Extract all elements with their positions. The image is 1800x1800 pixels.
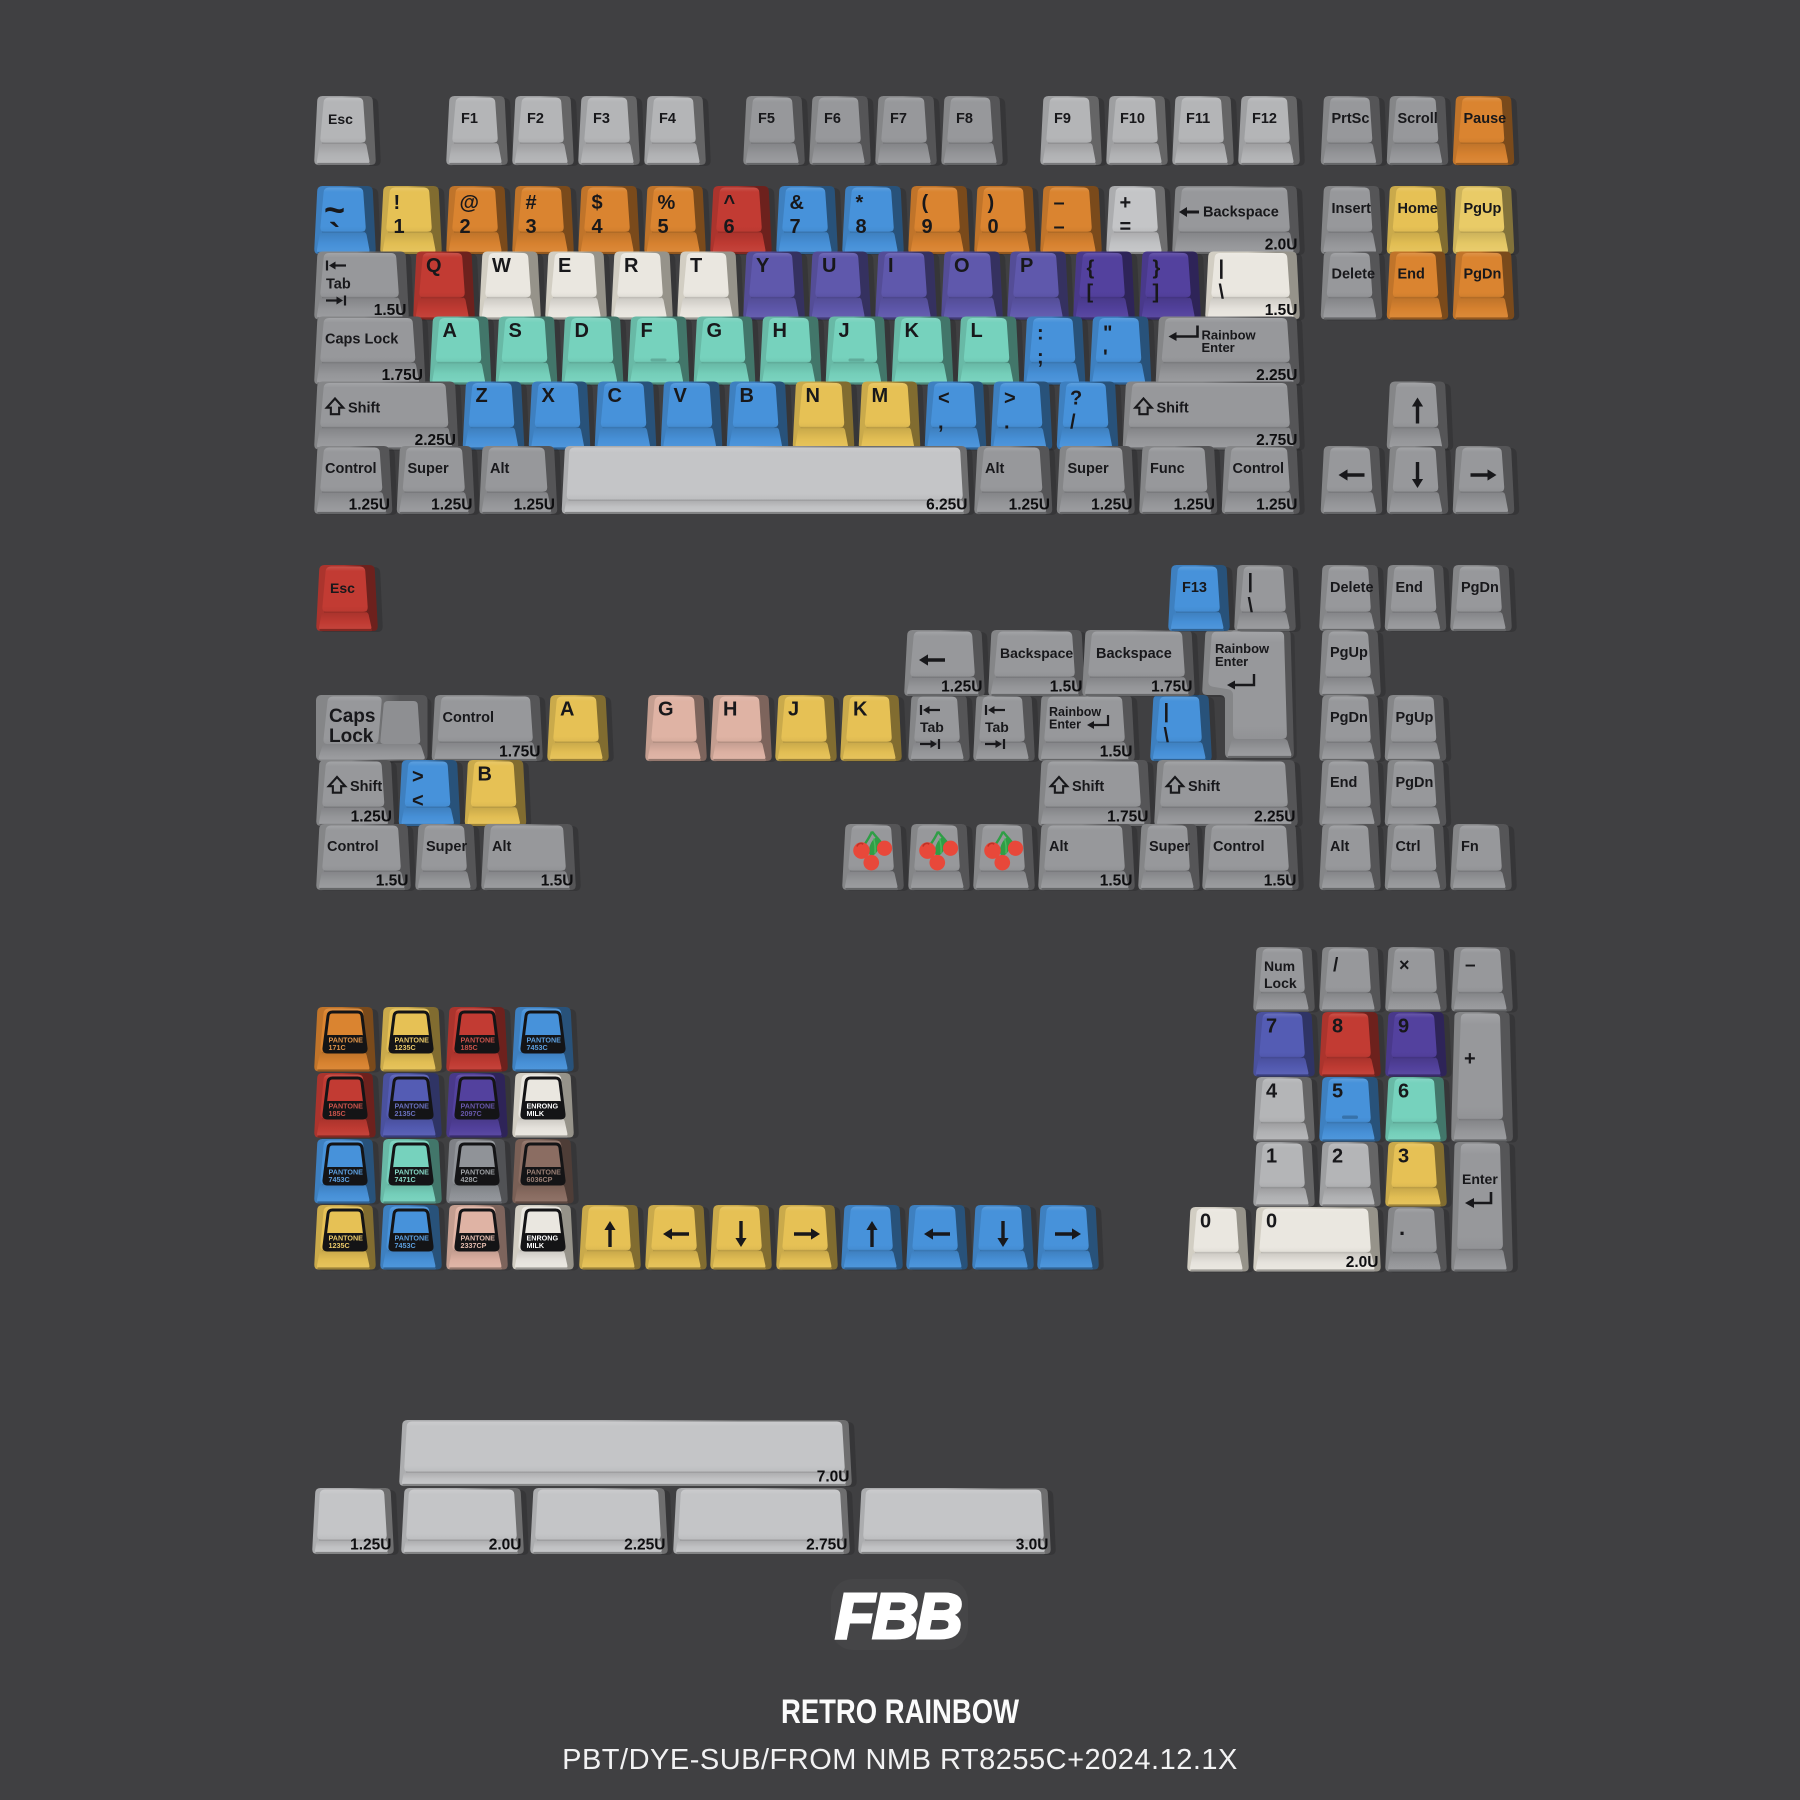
svg-text:2.25U: 2.25U bbox=[624, 1537, 665, 1554]
svg-text:B: B bbox=[478, 764, 492, 786]
svg-text:;: ; bbox=[1037, 347, 1044, 369]
svg-text:1.25U: 1.25U bbox=[514, 497, 555, 514]
svg-text:Super: Super bbox=[1149, 839, 1190, 855]
svg-text:2097C: 2097C bbox=[461, 1109, 482, 1118]
svg-text:Tab: Tab bbox=[326, 277, 351, 293]
svg-text:Control: Control bbox=[1233, 461, 1285, 477]
svg-text:PgDn: PgDn bbox=[1464, 267, 1502, 283]
svg-text:|: | bbox=[1248, 571, 1254, 593]
svg-text:Delete: Delete bbox=[1330, 580, 1374, 596]
svg-text:{: { bbox=[1087, 258, 1095, 280]
svg-text:PgDn: PgDn bbox=[1396, 775, 1434, 791]
svg-text:0: 0 bbox=[1266, 1211, 1277, 1233]
svg-text:8: 8 bbox=[856, 216, 867, 238]
svg-text:6036CP: 6036CP bbox=[527, 1175, 553, 1184]
svg-text:Scroll: Scroll bbox=[1398, 111, 1438, 127]
svg-text:W: W bbox=[492, 255, 511, 277]
svg-text:O: O bbox=[954, 255, 970, 277]
svg-text:PgUp: PgUp bbox=[1330, 645, 1368, 661]
svg-text:5: 5 bbox=[1332, 1081, 1343, 1103]
svg-text:[: [ bbox=[1087, 282, 1094, 304]
svg-text:–: – bbox=[1465, 955, 1476, 976]
svg-text:Shift: Shift bbox=[350, 779, 382, 795]
svg-text:2: 2 bbox=[1332, 1146, 1343, 1168]
svg-text:Alt: Alt bbox=[1330, 839, 1350, 855]
svg-text:@: @ bbox=[460, 192, 480, 214]
svg-text:Control: Control bbox=[443, 710, 495, 726]
svg-text:9: 9 bbox=[1398, 1016, 1409, 1038]
svg-text:PBT/DYE-SUB/FROM NMB RT8255C+2: PBT/DYE-SUB/FROM NMB RT8255C+2024.12.1X bbox=[562, 1744, 1238, 1776]
svg-text:×: × bbox=[1399, 955, 1410, 975]
svg-text:F8: F8 bbox=[956, 111, 973, 127]
svg-text:Backspace: Backspace bbox=[1000, 645, 1073, 661]
svg-text:1.75U: 1.75U bbox=[1151, 679, 1192, 696]
svg-text:F9: F9 bbox=[1054, 111, 1071, 127]
svg-text:1.25U: 1.25U bbox=[1009, 497, 1050, 514]
svg-text:|: | bbox=[1164, 701, 1170, 723]
svg-text:6: 6 bbox=[724, 216, 735, 238]
svg-text:Caps: Caps bbox=[329, 706, 375, 727]
svg-text:1.25U: 1.25U bbox=[1256, 497, 1297, 514]
svg-text:1.25U: 1.25U bbox=[431, 497, 472, 514]
svg-text:/: / bbox=[1070, 412, 1076, 434]
svg-text:Q: Q bbox=[426, 255, 442, 277]
svg-text:Super: Super bbox=[426, 839, 467, 855]
svg-text:I: I bbox=[888, 255, 894, 277]
svg-text:Lock: Lock bbox=[1264, 975, 1297, 991]
svg-text:\: \ bbox=[1248, 595, 1254, 617]
svg-text:F11: F11 bbox=[1186, 111, 1210, 127]
svg-text:1235C: 1235C bbox=[329, 1241, 350, 1250]
svg-text:#: # bbox=[526, 192, 537, 214]
svg-text:K: K bbox=[853, 699, 868, 721]
svg-text:G: G bbox=[707, 320, 723, 342]
svg-text:J: J bbox=[788, 699, 799, 721]
svg-text:2.75U: 2.75U bbox=[806, 1537, 847, 1554]
svg-text:!: ! bbox=[394, 192, 401, 214]
svg-text:1235C: 1235C bbox=[395, 1043, 416, 1052]
svg-text:M: M bbox=[872, 385, 889, 407]
svg-text:Esc: Esc bbox=[328, 111, 353, 127]
svg-text:Control: Control bbox=[327, 839, 379, 855]
svg-text:X: X bbox=[542, 385, 556, 407]
svg-text:.: . bbox=[1004, 412, 1010, 434]
svg-text:1.75U: 1.75U bbox=[499, 744, 540, 761]
svg-text:V: V bbox=[674, 385, 688, 407]
svg-text:7453C: 7453C bbox=[527, 1043, 548, 1052]
svg-text:1.5U: 1.5U bbox=[541, 873, 574, 890]
svg-text:9: 9 bbox=[922, 216, 933, 238]
svg-text:Control: Control bbox=[325, 461, 377, 477]
svg-text:FBB: FBB bbox=[835, 1580, 961, 1652]
svg-text:Tab: Tab bbox=[985, 719, 1009, 735]
svg-text:Pause: Pause bbox=[1464, 111, 1507, 127]
svg-text:1.25U: 1.25U bbox=[350, 1537, 391, 1554]
svg-text:MILK: MILK bbox=[527, 1241, 545, 1250]
svg-text:Y: Y bbox=[756, 255, 770, 277]
svg-text:Fn: Fn bbox=[1461, 839, 1479, 855]
svg-text:3.0U: 3.0U bbox=[1016, 1537, 1049, 1554]
svg-text:(: ( bbox=[922, 192, 929, 214]
svg-text:L: L bbox=[971, 320, 983, 342]
svg-text:^: ^ bbox=[724, 192, 736, 214]
svg-text:1.5U: 1.5U bbox=[1050, 679, 1083, 696]
svg-text:Num: Num bbox=[1264, 958, 1295, 974]
svg-text:2.25U: 2.25U bbox=[1256, 367, 1297, 384]
svg-text:&: & bbox=[790, 192, 804, 214]
svg-text:F12: F12 bbox=[1252, 111, 1277, 127]
svg-text:Alt: Alt bbox=[492, 839, 512, 855]
svg-text:Lock: Lock bbox=[329, 726, 374, 747]
svg-text:2.0U: 2.0U bbox=[489, 1537, 522, 1554]
svg-text:+: + bbox=[1120, 192, 1132, 214]
svg-text:Super: Super bbox=[408, 461, 449, 477]
svg-text:8: 8 bbox=[1332, 1016, 1343, 1038]
svg-text:3: 3 bbox=[526, 216, 537, 238]
svg-text::: : bbox=[1037, 323, 1044, 345]
svg-text:MILK: MILK bbox=[527, 1109, 545, 1118]
svg-text:Alt: Alt bbox=[1049, 839, 1069, 855]
svg-text:Shift: Shift bbox=[348, 401, 380, 417]
svg-text:F13: F13 bbox=[1182, 580, 1207, 596]
svg-text:185C: 185C bbox=[461, 1043, 478, 1052]
svg-text:7453C: 7453C bbox=[329, 1175, 350, 1184]
svg-text:Backspace: Backspace bbox=[1096, 646, 1172, 662]
svg-text:Func: Func bbox=[1150, 461, 1185, 477]
svg-text:1.25U: 1.25U bbox=[349, 497, 390, 514]
svg-text:`: ` bbox=[329, 217, 340, 255]
svg-text:': ' bbox=[1103, 347, 1108, 369]
svg-text:1.5U: 1.5U bbox=[376, 873, 409, 890]
svg-text:Enter: Enter bbox=[1215, 654, 1248, 669]
svg-text:End: End bbox=[1398, 267, 1425, 283]
svg-text:D: D bbox=[575, 320, 589, 342]
svg-text:2.25U: 2.25U bbox=[1254, 809, 1295, 826]
svg-text:|: | bbox=[1219, 258, 1225, 280]
svg-text:Ctrl: Ctrl bbox=[1396, 839, 1421, 855]
svg-text:1.5U: 1.5U bbox=[1100, 744, 1133, 761]
svg-text:%: % bbox=[658, 192, 676, 214]
svg-text:PgUp: PgUp bbox=[1396, 710, 1434, 726]
svg-text:1.5U: 1.5U bbox=[374, 302, 407, 319]
svg-text:1.5U: 1.5U bbox=[1265, 302, 1298, 319]
svg-text:End: End bbox=[1330, 775, 1357, 791]
svg-text:Alt: Alt bbox=[985, 461, 1005, 477]
svg-text:F3: F3 bbox=[593, 111, 610, 127]
svg-text:0: 0 bbox=[1200, 1211, 1211, 1233]
svg-text:End: End bbox=[1396, 580, 1423, 596]
svg-text:A: A bbox=[560, 699, 574, 721]
svg-text:PgDn: PgDn bbox=[1461, 580, 1499, 596]
svg-text:": " bbox=[1103, 323, 1112, 345]
svg-text:Esc: Esc bbox=[330, 580, 355, 596]
svg-text:6: 6 bbox=[1398, 1081, 1409, 1103]
svg-text:F1: F1 bbox=[461, 111, 478, 127]
svg-text:7: 7 bbox=[1266, 1016, 1277, 1038]
svg-text:7453C: 7453C bbox=[395, 1241, 416, 1250]
svg-text:A: A bbox=[443, 320, 457, 342]
svg-text:*: * bbox=[856, 192, 864, 214]
svg-text:7471C: 7471C bbox=[395, 1175, 416, 1184]
svg-text:1.25U: 1.25U bbox=[1091, 497, 1132, 514]
svg-text:$: $ bbox=[592, 192, 603, 214]
svg-text:Backspace: Backspace bbox=[1203, 205, 1279, 221]
svg-text:E: E bbox=[558, 255, 571, 277]
svg-text:Shift: Shift bbox=[1157, 401, 1189, 417]
svg-text:Tab: Tab bbox=[920, 719, 944, 735]
svg-text:F2: F2 bbox=[527, 111, 544, 127]
svg-text:B: B bbox=[740, 385, 754, 407]
svg-text:4: 4 bbox=[592, 216, 604, 238]
svg-text:Enter: Enter bbox=[1462, 1171, 1498, 1187]
svg-text:<: < bbox=[938, 388, 950, 410]
svg-text:>: > bbox=[1004, 388, 1016, 410]
svg-text:PgDn: PgDn bbox=[1330, 710, 1368, 726]
svg-text:1.75U: 1.75U bbox=[1107, 809, 1148, 826]
svg-text:,: , bbox=[938, 412, 944, 434]
svg-text:R: R bbox=[624, 255, 639, 277]
svg-text:2.0U: 2.0U bbox=[1265, 237, 1298, 254]
svg-text:7.0U: 7.0U bbox=[817, 1469, 850, 1486]
svg-text:Home: Home bbox=[1398, 201, 1438, 217]
svg-text:\: \ bbox=[1164, 725, 1170, 747]
svg-text:1.25U: 1.25U bbox=[351, 809, 392, 826]
svg-text:5: 5 bbox=[658, 216, 669, 238]
svg-text:185C: 185C bbox=[329, 1109, 346, 1118]
svg-text:H: H bbox=[723, 699, 737, 721]
svg-text:1: 1 bbox=[394, 216, 405, 238]
svg-text:Control: Control bbox=[1213, 839, 1265, 855]
svg-text:2: 2 bbox=[460, 216, 471, 238]
svg-text:F: F bbox=[641, 320, 653, 342]
svg-text:F10: F10 bbox=[1120, 111, 1145, 127]
svg-text:1: 1 bbox=[1266, 1146, 1277, 1168]
svg-text:K: K bbox=[905, 320, 920, 342]
svg-text:F6: F6 bbox=[824, 111, 841, 127]
svg-text:.: . bbox=[1399, 1215, 1405, 1240]
svg-text:–: – bbox=[1054, 216, 1065, 238]
svg-text:F7: F7 bbox=[890, 111, 907, 127]
svg-text:G: G bbox=[658, 699, 674, 721]
svg-text:Alt: Alt bbox=[490, 461, 510, 477]
svg-text:1.25U: 1.25U bbox=[941, 679, 982, 696]
svg-text:/: / bbox=[1333, 955, 1339, 976]
svg-text:H: H bbox=[773, 320, 787, 342]
svg-text:Enter: Enter bbox=[1202, 340, 1235, 355]
svg-text:J: J bbox=[839, 320, 850, 342]
svg-text:3: 3 bbox=[1398, 1146, 1409, 1168]
svg-text:P: P bbox=[1020, 255, 1033, 277]
svg-text:N: N bbox=[806, 385, 820, 407]
svg-text:>: > bbox=[412, 766, 424, 788]
svg-text:PgUp: PgUp bbox=[1464, 201, 1502, 217]
svg-text:2337CP: 2337CP bbox=[461, 1241, 487, 1250]
svg-text:428C: 428C bbox=[461, 1175, 478, 1184]
svg-text:C: C bbox=[608, 385, 622, 407]
svg-text:Z: Z bbox=[476, 385, 488, 407]
svg-text:U: U bbox=[822, 255, 836, 277]
svg-text:]: ] bbox=[1153, 282, 1160, 304]
svg-text:2135C: 2135C bbox=[395, 1109, 416, 1118]
svg-text:0: 0 bbox=[988, 216, 999, 238]
svg-text:1.5U: 1.5U bbox=[1264, 873, 1297, 890]
svg-text:Shift: Shift bbox=[1188, 779, 1220, 795]
svg-text:Caps Lock: Caps Lock bbox=[325, 332, 399, 348]
svg-text:–: – bbox=[1054, 192, 1065, 214]
svg-text:6.25U: 6.25U bbox=[926, 497, 967, 514]
svg-text:<: < bbox=[412, 790, 424, 812]
svg-text:Super: Super bbox=[1068, 461, 1109, 477]
svg-text:\: \ bbox=[1219, 282, 1225, 304]
svg-text:F5: F5 bbox=[758, 111, 775, 127]
svg-text:+: + bbox=[1464, 1048, 1476, 1070]
svg-text:): ) bbox=[988, 192, 995, 214]
svg-text:Enter: Enter bbox=[1049, 718, 1081, 732]
svg-text:Shift: Shift bbox=[1072, 779, 1104, 795]
svg-text:S: S bbox=[509, 320, 522, 342]
svg-text:PrtSc: PrtSc bbox=[1332, 111, 1370, 127]
svg-text:}: } bbox=[1153, 258, 1161, 280]
svg-text:=: = bbox=[1120, 216, 1132, 238]
svg-text:T: T bbox=[690, 255, 702, 277]
svg-text:1.25U: 1.25U bbox=[1174, 497, 1215, 514]
svg-text:4: 4 bbox=[1266, 1081, 1278, 1103]
svg-text:Insert: Insert bbox=[1332, 201, 1372, 217]
svg-text:7: 7 bbox=[790, 216, 801, 238]
svg-text:RETRO RAINBOW: RETRO RAINBOW bbox=[781, 1693, 1020, 1731]
svg-text:2.0U: 2.0U bbox=[1346, 1254, 1379, 1271]
svg-text:171C: 171C bbox=[329, 1043, 346, 1052]
svg-text:1.75U: 1.75U bbox=[382, 367, 423, 384]
svg-text:F4: F4 bbox=[659, 111, 676, 127]
svg-text:?: ? bbox=[1070, 388, 1082, 410]
svg-text:Delete: Delete bbox=[1332, 267, 1376, 283]
svg-text:1.5U: 1.5U bbox=[1100, 873, 1133, 890]
